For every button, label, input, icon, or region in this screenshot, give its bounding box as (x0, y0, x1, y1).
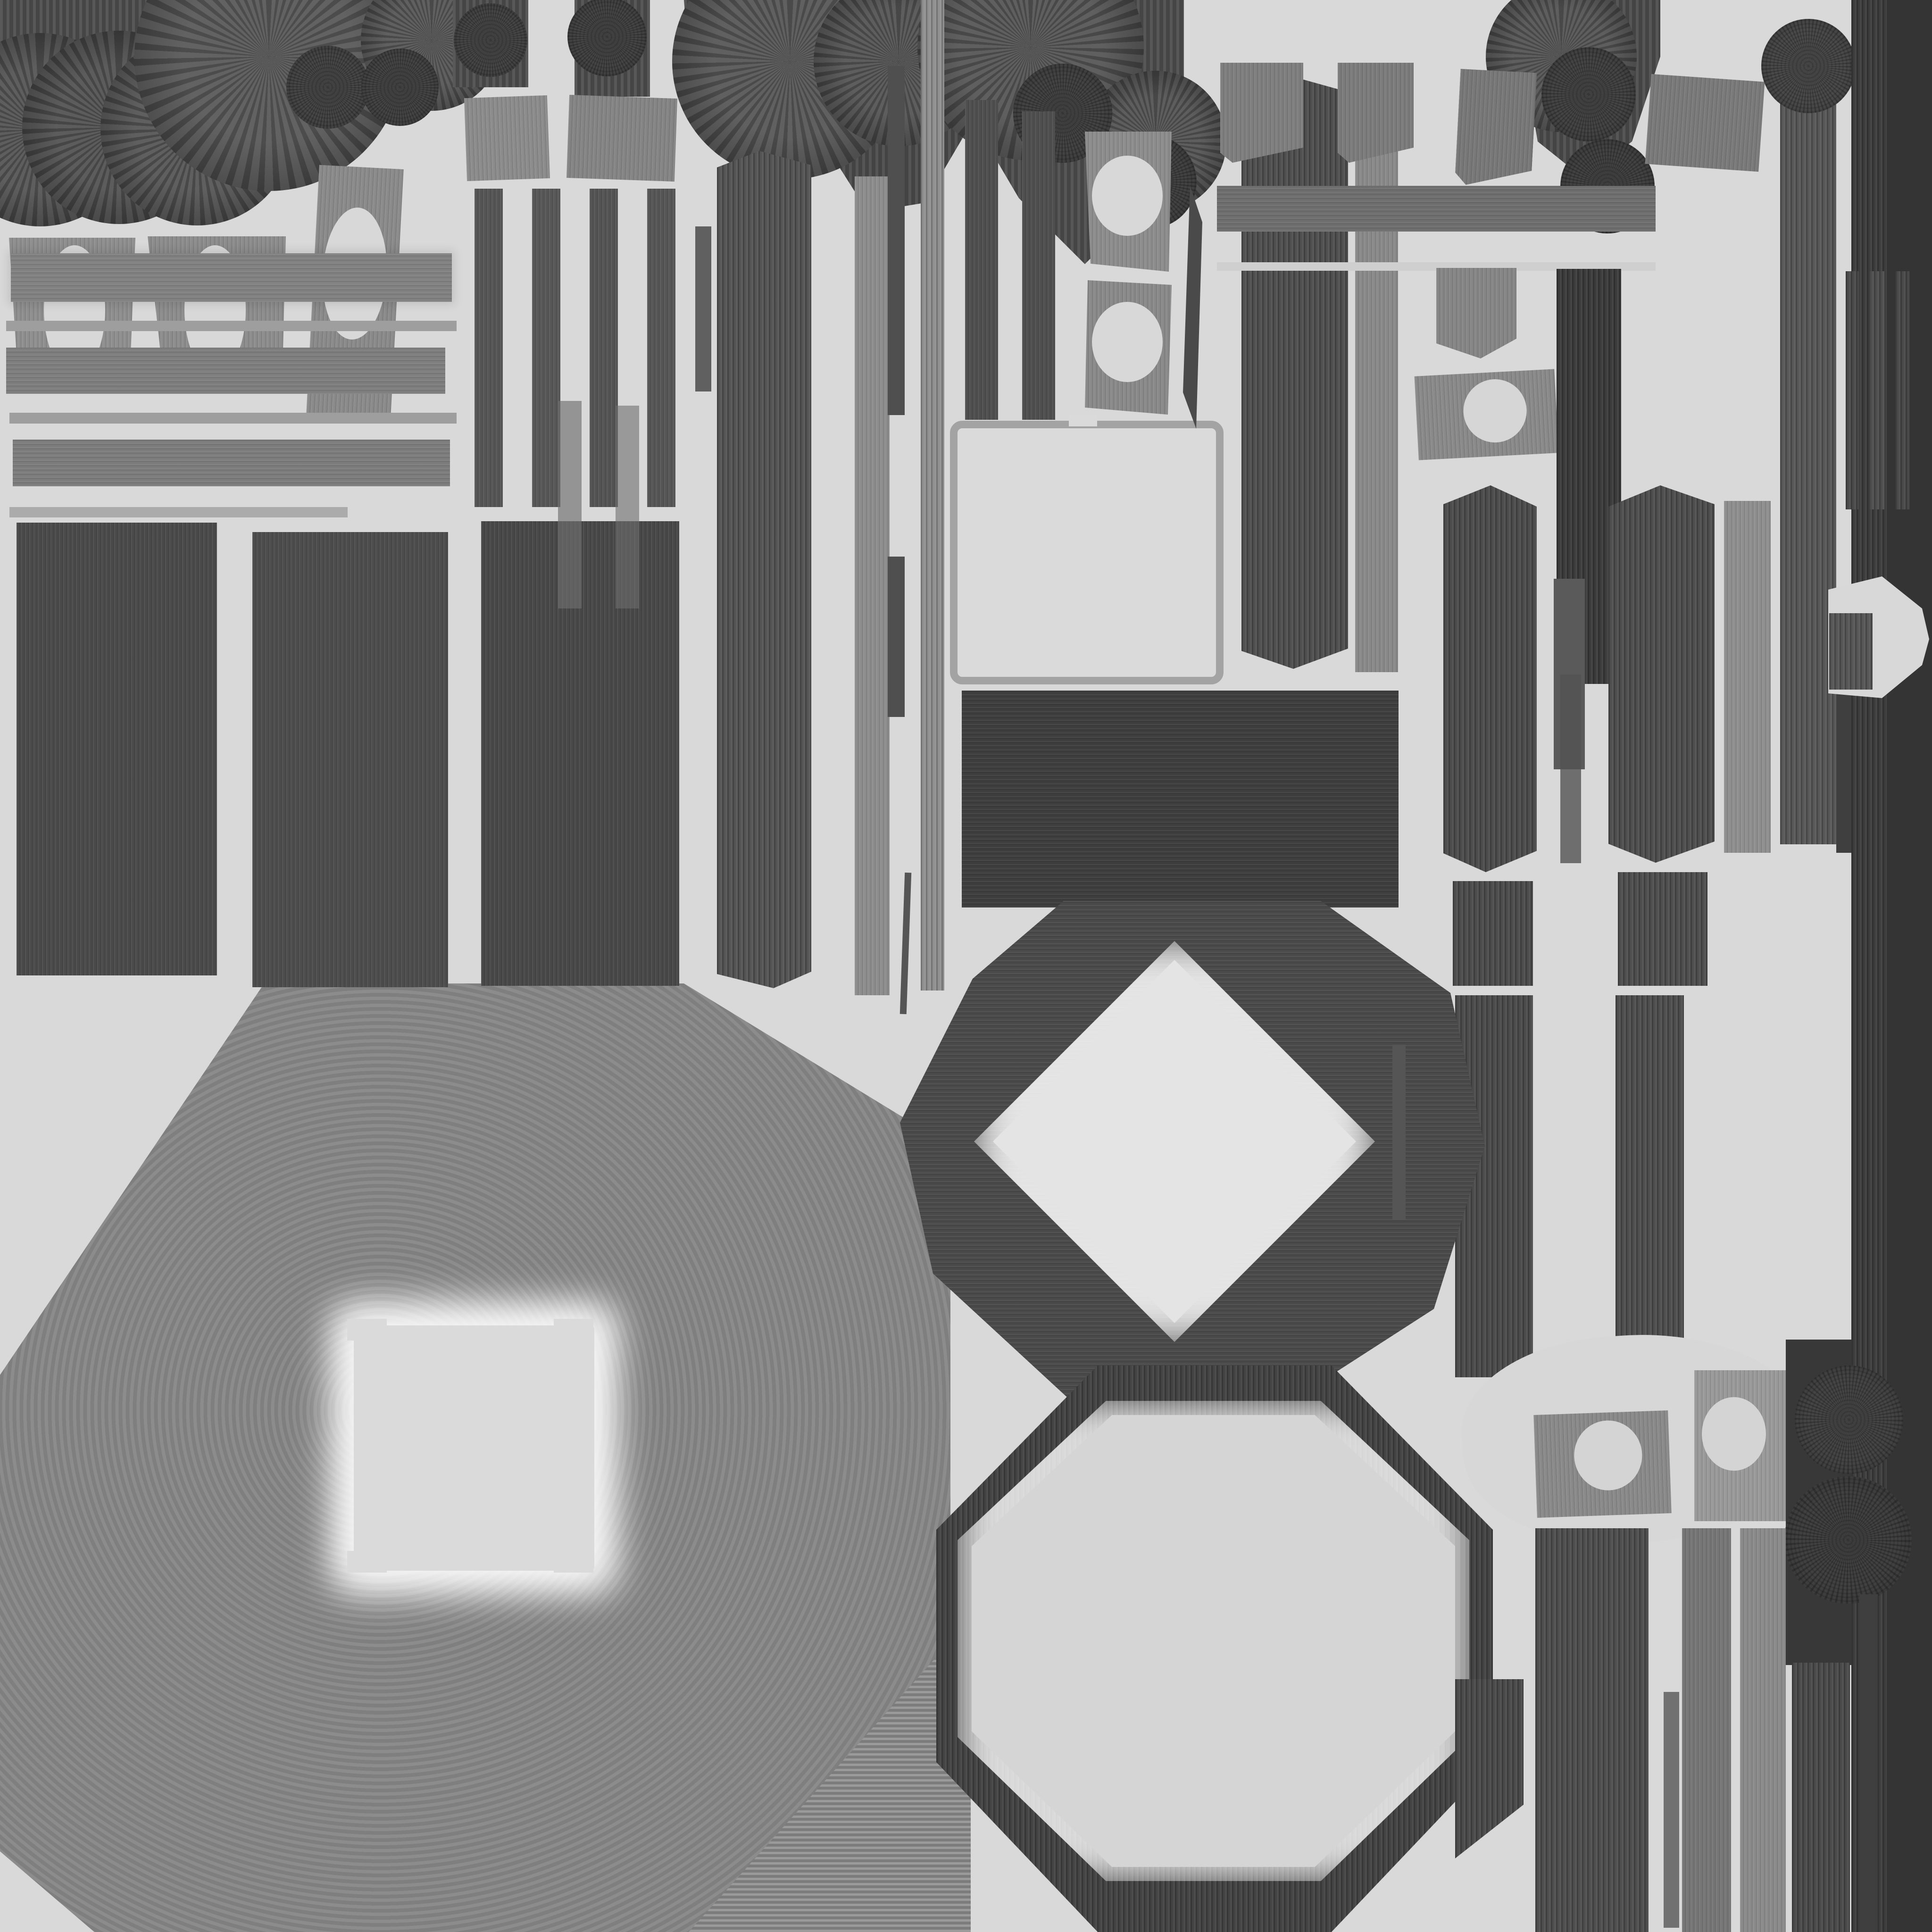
horizontal-bar-k (1217, 186, 1656, 232)
column-medium-u (855, 176, 890, 995)
wood-square-d (464, 95, 550, 181)
wavy-bark-3 (1895, 271, 1909, 509)
big-plank-1 (17, 523, 217, 975)
panel-tab-top (1069, 415, 1097, 426)
h-plank-2 (6, 348, 445, 394)
blob-side-pad (1392, 1045, 1406, 1219)
column-r2 (1608, 485, 1715, 863)
treering-4 (567, 0, 647, 76)
h-strip-3 (9, 507, 348, 517)
treering-r4-top (1761, 19, 1856, 113)
bottom-column-4 (1740, 1528, 1786, 1932)
strip-p2 (1022, 111, 1055, 420)
thin-squiggle (900, 873, 911, 1014)
bottom-column-pad (1664, 1692, 1679, 1928)
trunk-column-2 (1241, 75, 1348, 669)
h-plank-1 (11, 253, 452, 302)
texture-atlas (0, 0, 1932, 1932)
wood-square-j (1455, 69, 1537, 188)
divider-column (921, 0, 944, 991)
plain-square-r (1436, 268, 1516, 358)
strip-p1 (965, 100, 998, 420)
light-panel (950, 421, 1224, 684)
bark-column-r4 (1780, 30, 1836, 844)
big-plank-2 (252, 532, 448, 987)
soft-pad-1 (558, 401, 582, 608)
h-strip-1 (6, 321, 457, 331)
treering-big-1 (1795, 1366, 1903, 1474)
pad-r2 (1560, 675, 1581, 863)
arrow-bark-inset (1829, 613, 1873, 690)
ring-octagon-hole (972, 1415, 1455, 1867)
speaker-square-q2 (1694, 1370, 1786, 1521)
speaker-square-f-hole (1092, 156, 1163, 236)
short-strip (695, 226, 711, 391)
octagon-hole-tab-bl (347, 1551, 387, 1573)
octagon-square-hole (354, 1325, 594, 1571)
speaker-square-g (1085, 280, 1172, 415)
wavy-bark-2 (1869, 271, 1885, 509)
column-r1b (1453, 881, 1533, 986)
bottom-column-1 (1455, 1679, 1524, 1858)
bottom-column-2 (1535, 1528, 1649, 1932)
thin-plank-2 (532, 189, 560, 507)
wood-trapezoid (1645, 74, 1765, 172)
wood-square-h (1220, 63, 1303, 163)
wood-square-e (566, 95, 677, 182)
speaker-square-q1-hole (1573, 1419, 1643, 1491)
thin-plank-3 (590, 189, 618, 507)
wavy-bark-1 (1846, 271, 1859, 509)
dark-segment-1 (888, 66, 905, 415)
bottom-column-5 (1792, 1663, 1850, 1932)
wood-square-i (1338, 63, 1414, 163)
thin-plank-1 (475, 189, 503, 507)
treering-2 (361, 49, 439, 126)
column-r2b (1618, 872, 1707, 986)
trunk-column-1 (717, 151, 811, 988)
treering-big-2 (1784, 1476, 1912, 1604)
h-plank-3 (13, 440, 450, 486)
soft-pad-2 (616, 406, 639, 608)
octagon-hole-tab-tr (554, 1319, 593, 1341)
treering-1 (286, 46, 369, 129)
circle-square-r-hole (1462, 378, 1528, 444)
dark-segment-2 (888, 557, 905, 717)
speaker-square-g-hole (1092, 302, 1163, 382)
octagon-hole-tab-tl (347, 1319, 387, 1341)
dark-sliver (1178, 186, 1202, 429)
circle-square-r (1415, 369, 1559, 460)
column-r3 (1724, 501, 1771, 853)
octagon-hole-tab-br (554, 1551, 593, 1573)
dark-rectangle (962, 691, 1399, 908)
speaker-square-q2-hole (1702, 1397, 1766, 1471)
speaker-square-f (1085, 132, 1172, 272)
treering-j1 (1541, 47, 1636, 142)
h-strip-2 (9, 413, 457, 424)
speaker-square-q1 (1533, 1410, 1671, 1518)
bottom-column-3 (1682, 1528, 1731, 1932)
treering-3 (454, 3, 527, 77)
column-r1 (1443, 485, 1537, 872)
thin-plank-4 (647, 189, 675, 507)
bottom-column-6 (1859, 1594, 1878, 1932)
panel-tab-bottom (1069, 664, 1097, 675)
